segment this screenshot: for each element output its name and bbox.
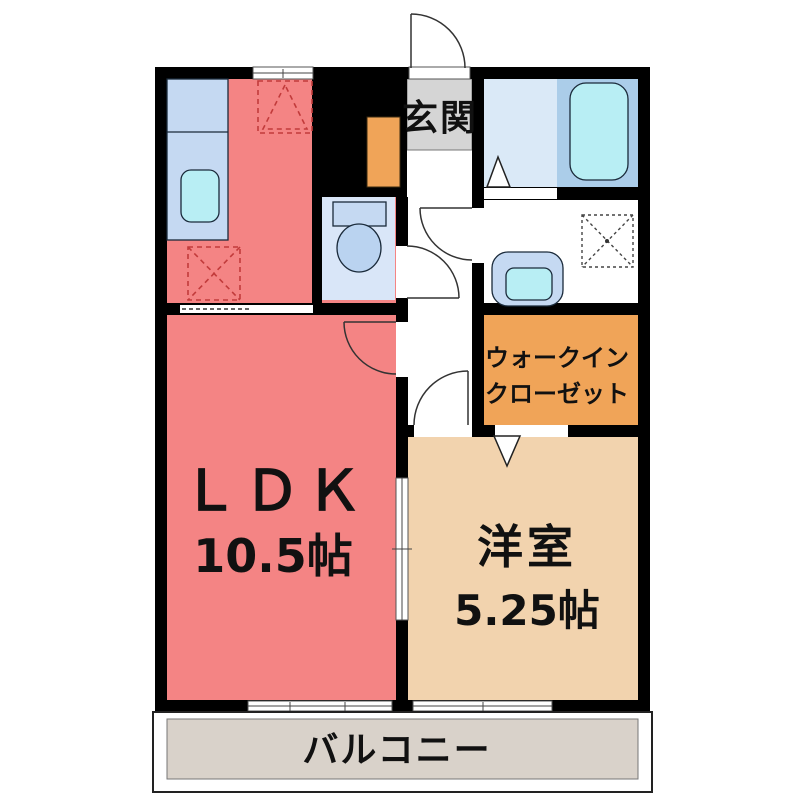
washroom-doorway [472, 208, 484, 263]
entry-door-swing [411, 14, 465, 68]
genkan-label: 玄関 [402, 98, 478, 139]
closet-label-line2: クローゼット [485, 380, 629, 408]
window-ldk-balcony [248, 701, 392, 711]
western-room-label: 洋室 [477, 520, 577, 574]
closet-opening [495, 425, 568, 437]
wall-right [638, 67, 650, 712]
ldk-label: ＬＤＫ [182, 459, 368, 524]
washbasin-icon [492, 252, 563, 306]
closet-label-line1: ウォークイン [485, 344, 629, 372]
wall-washroom-closet-divider [472, 303, 638, 315]
floor-plan-canvas: 玄関 ウォークイン クローゼット ＬＤＫ 10.5帖 洋室 5.25帖 バルコニ… [0, 0, 800, 800]
western-room-size-label: 5.25帖 [454, 586, 600, 635]
kitchen-counter [167, 79, 228, 240]
floor-plan: 玄関 ウォークイン クローゼット ＬＤＫ 10.5帖 洋室 5.25帖 バルコニ… [0, 0, 800, 800]
ldk-size-label: 10.5帖 [193, 529, 353, 583]
entry-door-threshold [409, 67, 470, 79]
wall-toilet-left [312, 197, 322, 315]
window-western-balcony [413, 701, 552, 711]
bathtub-icon [570, 83, 628, 180]
balcony-label: バルコニー [302, 730, 491, 771]
wall-left [155, 67, 167, 712]
kitchen-sink-icon [181, 170, 219, 222]
toilet-doorway [396, 246, 408, 298]
wall-western-door-corner [408, 425, 414, 437]
bathroom-entry-opening [484, 188, 557, 199]
ldk-doorway [396, 322, 408, 377]
shoe-cabinet [367, 117, 400, 187]
western-room-doorway [414, 425, 468, 437]
